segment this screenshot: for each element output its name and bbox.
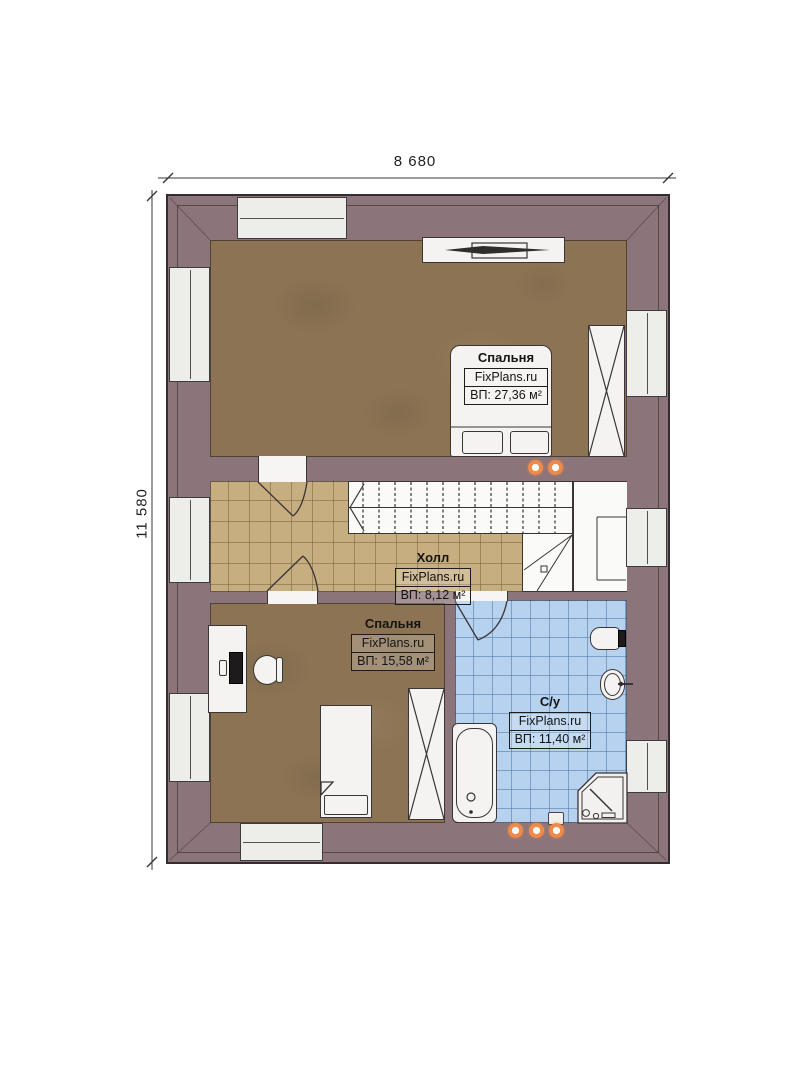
door-bedroom-bottom bbox=[267, 591, 318, 604]
room-name: Спальня bbox=[328, 615, 458, 632]
vent-dot bbox=[528, 460, 543, 475]
area-text: ВП: 8,12 м² bbox=[396, 586, 471, 604]
floor-plan-canvas: 8 680 11 580 bbox=[0, 0, 792, 1080]
vent-dot bbox=[548, 460, 563, 475]
label-box: FixPlans.ru ВП: 8,12 м² bbox=[395, 568, 472, 605]
monitor bbox=[229, 652, 243, 684]
brand-text: FixPlans.ru bbox=[396, 569, 471, 586]
toilet-bowl bbox=[590, 627, 620, 650]
door-bedroom-top bbox=[258, 456, 307, 482]
area-text: ВП: 15,58 м² bbox=[352, 652, 434, 670]
room-name: Спальня bbox=[441, 349, 571, 366]
brand-text: FixPlans.ru bbox=[352, 635, 434, 652]
dimension-width-label: 8 680 bbox=[355, 153, 475, 170]
label-hall: Холл FixPlans.ru ВП: 8,12 м² bbox=[368, 549, 498, 605]
vent-dot bbox=[529, 823, 544, 838]
brand-text: FixPlans.ru bbox=[465, 369, 547, 386]
window-bottom-wall bbox=[240, 823, 323, 861]
pillow-left bbox=[462, 431, 503, 454]
dimension-height-label: 11 580 bbox=[134, 454, 151, 574]
desk-speaker bbox=[219, 660, 227, 676]
wardrobe-top bbox=[588, 325, 625, 457]
window-right-landing bbox=[626, 508, 667, 567]
label-bathroom: С/у FixPlans.ru ВП: 11,40 м² bbox=[485, 693, 615, 749]
window-left-bedroom-bottom bbox=[169, 693, 210, 782]
tv-stand bbox=[422, 237, 565, 263]
label-box: FixPlans.ru ВП: 15,58 м² bbox=[351, 634, 435, 671]
staircase-landing bbox=[573, 481, 627, 592]
window-right-bedroom-top bbox=[626, 310, 667, 397]
chair-back bbox=[276, 657, 283, 683]
room-name: Холл bbox=[368, 549, 498, 566]
label-box: FixPlans.ru ВП: 11,40 м² bbox=[509, 712, 592, 749]
area-text: ВП: 11,40 м² bbox=[510, 730, 591, 748]
window-left-bedroom-top bbox=[169, 267, 210, 382]
vent-dot bbox=[549, 823, 564, 838]
pillow-right bbox=[510, 431, 549, 454]
single-bed-pillow bbox=[324, 795, 368, 815]
label-box: FixPlans.ru ВП: 27,36 м² bbox=[464, 368, 548, 405]
toilet-tank bbox=[618, 630, 626, 647]
room-name: С/у bbox=[485, 693, 615, 710]
staircase-winder bbox=[522, 534, 573, 592]
label-bedroom-bottom: Спальня FixPlans.ru ВП: 15,58 м² bbox=[328, 615, 458, 671]
window-left-hall bbox=[169, 497, 210, 583]
area-text: ВП: 27,36 м² bbox=[465, 386, 547, 404]
window-top-wall bbox=[237, 197, 347, 239]
window-right-bathroom bbox=[626, 740, 667, 793]
wardrobe-bottom bbox=[408, 688, 445, 820]
staircase-run bbox=[348, 481, 573, 534]
label-bedroom-top: Спальня FixPlans.ru ВП: 27,36 м² bbox=[441, 349, 571, 405]
vent-dot bbox=[508, 823, 523, 838]
brand-text: FixPlans.ru bbox=[510, 713, 591, 730]
